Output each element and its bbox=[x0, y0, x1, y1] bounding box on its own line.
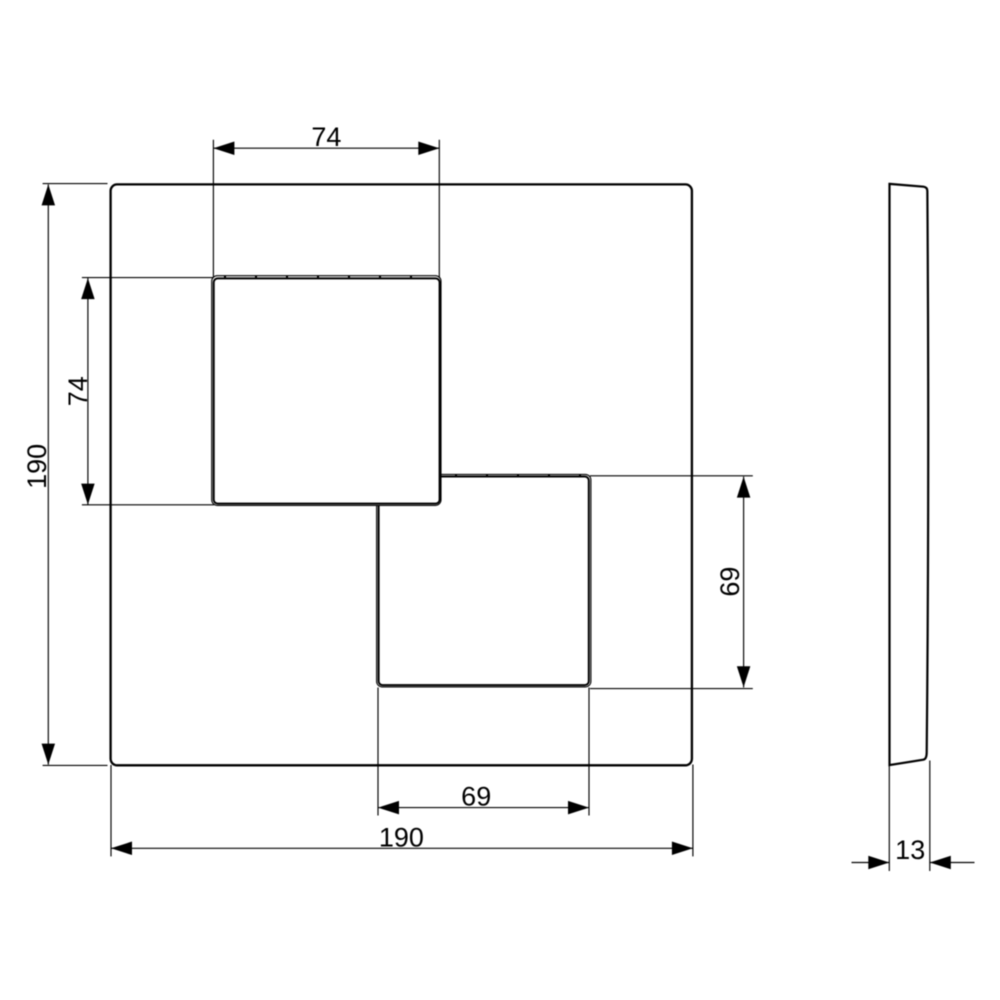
svg-text:190: 190 bbox=[379, 822, 424, 852]
svg-text:69: 69 bbox=[461, 782, 491, 812]
svg-text:190: 190 bbox=[22, 444, 52, 489]
svg-text:69: 69 bbox=[715, 567, 745, 597]
svg-text:74: 74 bbox=[63, 376, 93, 406]
svg-text:74: 74 bbox=[311, 122, 341, 152]
svg-text:13: 13 bbox=[895, 835, 925, 865]
